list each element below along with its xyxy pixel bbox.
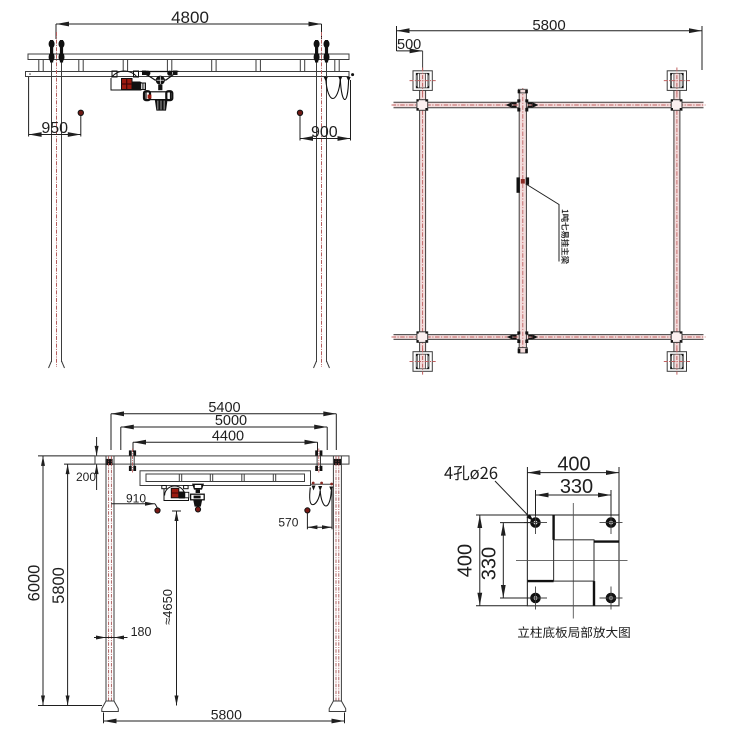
svg-text:330: 330 — [560, 476, 593, 498]
svg-text:5800: 5800 — [532, 17, 565, 34]
svg-text:≈4650: ≈4650 — [160, 589, 175, 625]
svg-text:400: 400 — [557, 454, 590, 476]
svg-text:4800: 4800 — [171, 8, 209, 27]
svg-text:6000: 6000 — [26, 565, 44, 602]
svg-text:330: 330 — [479, 547, 501, 580]
svg-text:900: 900 — [311, 124, 338, 141]
svg-text:4400: 4400 — [212, 428, 244, 444]
svg-text:950: 950 — [41, 120, 68, 137]
svg-text:5000: 5000 — [215, 413, 247, 429]
svg-text:180: 180 — [131, 625, 152, 639]
svg-text:400: 400 — [455, 544, 477, 577]
svg-text:570: 570 — [278, 515, 298, 529]
svg-text:200: 200 — [76, 470, 96, 484]
svg-text:5800: 5800 — [50, 567, 68, 604]
svg-text:5800: 5800 — [211, 707, 242, 723]
